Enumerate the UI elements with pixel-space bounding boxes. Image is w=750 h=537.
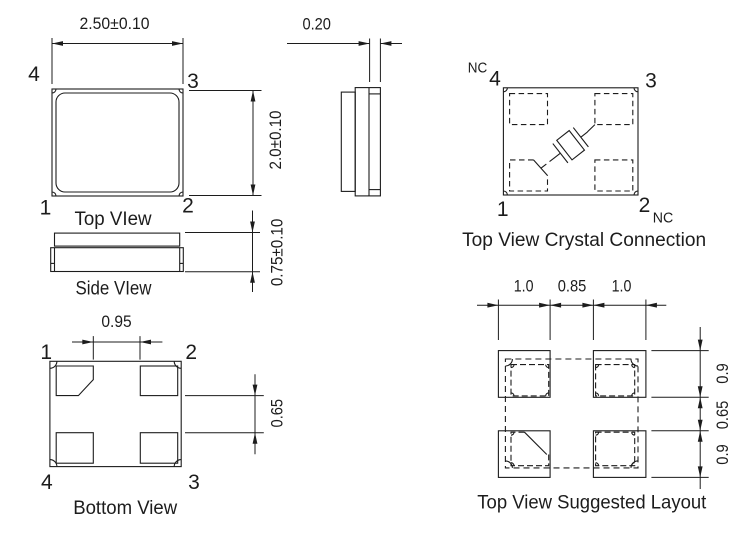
svg-text:0.9: 0.9 xyxy=(713,363,732,384)
svg-text:0.20: 0.20 xyxy=(302,14,331,33)
svg-text:1.0: 1.0 xyxy=(612,276,632,295)
svg-text:3: 3 xyxy=(188,471,200,494)
svg-text:1.0: 1.0 xyxy=(514,276,534,295)
svg-text:NC: NC xyxy=(468,61,488,77)
svg-text:Top View Suggested Layout: Top View Suggested Layout xyxy=(477,492,707,514)
svg-text:0.85: 0.85 xyxy=(558,276,587,295)
svg-text:0.95: 0.95 xyxy=(101,312,131,331)
svg-text:3: 3 xyxy=(187,70,199,93)
svg-text:Top VIew: Top VIew xyxy=(75,208,153,230)
svg-text:0.9: 0.9 xyxy=(713,444,732,465)
svg-text:1: 1 xyxy=(497,198,509,221)
svg-text:0.65: 0.65 xyxy=(713,401,732,430)
svg-text:1: 1 xyxy=(40,197,52,220)
svg-text:Top View Crystal Connection: Top View Crystal Connection xyxy=(462,229,706,251)
svg-text:0.75±0.10: 0.75±0.10 xyxy=(268,219,287,287)
svg-text:Bottom View: Bottom View xyxy=(73,497,178,519)
svg-text:2.50±0.10: 2.50±0.10 xyxy=(80,14,150,33)
svg-text:2.0±0.10: 2.0±0.10 xyxy=(266,111,285,170)
svg-text:1: 1 xyxy=(40,341,52,364)
svg-text:4: 4 xyxy=(489,68,501,91)
svg-text:0.65: 0.65 xyxy=(268,399,287,428)
svg-text:NC: NC xyxy=(653,211,674,227)
svg-text:2: 2 xyxy=(185,341,197,364)
svg-text:3: 3 xyxy=(645,70,657,93)
svg-text:2: 2 xyxy=(182,195,194,218)
svg-text:4: 4 xyxy=(28,63,40,86)
svg-text:Side VIew: Side VIew xyxy=(76,278,153,300)
svg-text:4: 4 xyxy=(41,471,53,494)
svg-text:2: 2 xyxy=(639,194,651,217)
